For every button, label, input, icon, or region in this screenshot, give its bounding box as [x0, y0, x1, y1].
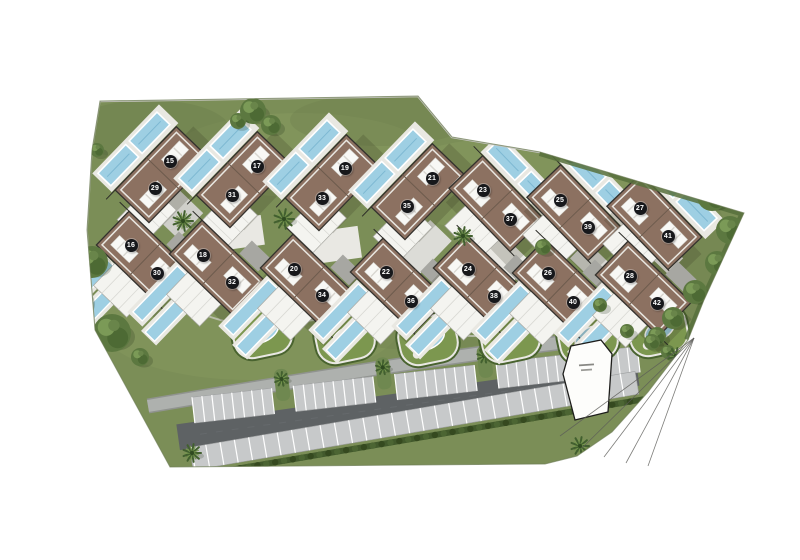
tree [41, 275, 95, 325]
unit-marker-35[interactable]: 35 [401, 200, 414, 213]
unit-marker-20[interactable]: 20 [288, 263, 301, 276]
unit-marker-41[interactable]: 41 [662, 230, 675, 243]
unit-marker-33[interactable]: 33 [316, 192, 329, 205]
unit-marker-16[interactable]: 16 [125, 239, 138, 252]
site-area [35, 94, 748, 479]
tree [705, 251, 733, 276]
tree [675, 158, 705, 184]
unit-marker-15[interactable]: 15 [164, 155, 177, 168]
tree [72, 331, 100, 356]
tree [697, 181, 731, 211]
unit-marker-29[interactable]: 29 [149, 182, 162, 195]
unit-marker-31[interactable]: 31 [226, 189, 239, 202]
unit-marker-24[interactable]: 24 [462, 263, 475, 276]
unit-marker-36[interactable]: 36 [405, 295, 418, 308]
unit-marker-34[interactable]: 34 [316, 289, 329, 302]
unit-marker-28[interactable]: 28 [624, 270, 637, 283]
unit-marker-39[interactable]: 39 [582, 221, 595, 234]
unit-marker-17[interactable]: 17 [251, 160, 264, 173]
unit-marker-21[interactable]: 21 [426, 172, 439, 185]
tree [573, 121, 601, 146]
unit-marker-26[interactable]: 26 [542, 267, 555, 280]
unit-marker-38[interactable]: 38 [488, 290, 501, 303]
unit-marker-19[interactable]: 19 [339, 162, 352, 175]
unit-marker-25[interactable]: 25 [554, 194, 567, 207]
unit-marker-23[interactable]: 23 [477, 184, 490, 197]
unit-marker-18[interactable]: 18 [197, 249, 210, 262]
site-plan-svg [0, 0, 800, 560]
unit-marker-30[interactable]: 30 [151, 267, 164, 280]
unit-marker-40[interactable]: 40 [567, 296, 580, 309]
unit-marker-32[interactable]: 32 [226, 276, 239, 289]
tree [596, 136, 622, 159]
unit-marker-27[interactable]: 27 [634, 202, 647, 215]
unit-marker-22[interactable]: 22 [380, 266, 393, 279]
masterplan-canvas: 1517192123252729313335373941161820222426… [0, 0, 800, 560]
unit-marker-42[interactable]: 42 [651, 297, 664, 310]
unit-marker-37[interactable]: 37 [504, 213, 517, 226]
